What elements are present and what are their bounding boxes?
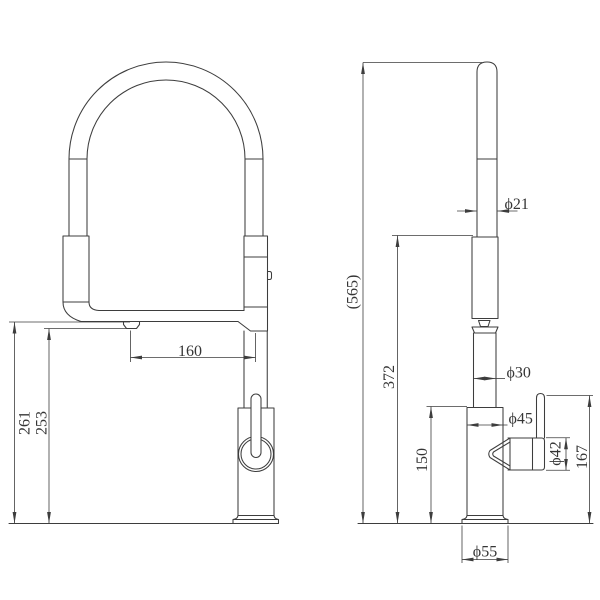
dim-label-372: 372	[381, 365, 398, 389]
side-sprayer-sleeve	[472, 237, 498, 319]
front-aerator	[124, 322, 140, 329]
side-lever-rod	[537, 394, 545, 439]
dim-label-160: 160	[178, 343, 202, 360]
front-arch-inner-tube	[87, 80, 245, 236]
front-left-sleeve	[63, 236, 89, 302]
dim-label-phi30: ϕ30	[507, 365, 531, 382]
side-body	[467, 408, 503, 516]
front-base-flare	[233, 516, 279, 524]
side-aerator-band	[472, 321, 498, 334]
front-spout-arm-left-inner	[89, 302, 99, 311]
dim-label-phi21: ϕ21	[505, 196, 529, 213]
dim-label-167: 167	[574, 445, 591, 469]
dim-label-565: (565)	[345, 275, 362, 310]
faucet-front-view	[9, 62, 279, 524]
front-sprayer-head	[244, 236, 268, 307]
side-view-dimensions: (565) 372 150 ϕ21 ϕ30 ϕ45 ϕ42 167 ϕ55	[345, 63, 594, 564]
technical-drawing-canvas: 261 253 160 (565) 372	[0, 0, 600, 600]
dim-label-150: 150	[414, 448, 431, 472]
side-handle-cylinder	[508, 438, 545, 470]
side-base-flare	[462, 516, 508, 524]
dim-label-253: 253	[34, 411, 51, 435]
dim-label-phi42: ϕ42	[548, 441, 565, 465]
front-sprayer-button	[268, 272, 272, 280]
front-view-dimensions: 261 253 160	[9, 322, 256, 524]
front-arch-outer-tube	[69, 62, 263, 236]
side-spring-tube	[477, 62, 497, 237]
dim-label-phi45: ϕ45	[509, 411, 533, 428]
dim-label-261: 261	[17, 411, 34, 435]
drawing-sheet: 261 253 160 (565) 372	[0, 0, 600, 600]
side-handle-cone-inner	[493, 442, 510, 466]
side-handle-cone-outer	[489, 438, 510, 470]
front-lever-rod	[251, 394, 261, 458]
dim-label-phi55: ϕ55	[473, 544, 497, 561]
front-spout-arm-left-outer	[63, 302, 81, 322]
